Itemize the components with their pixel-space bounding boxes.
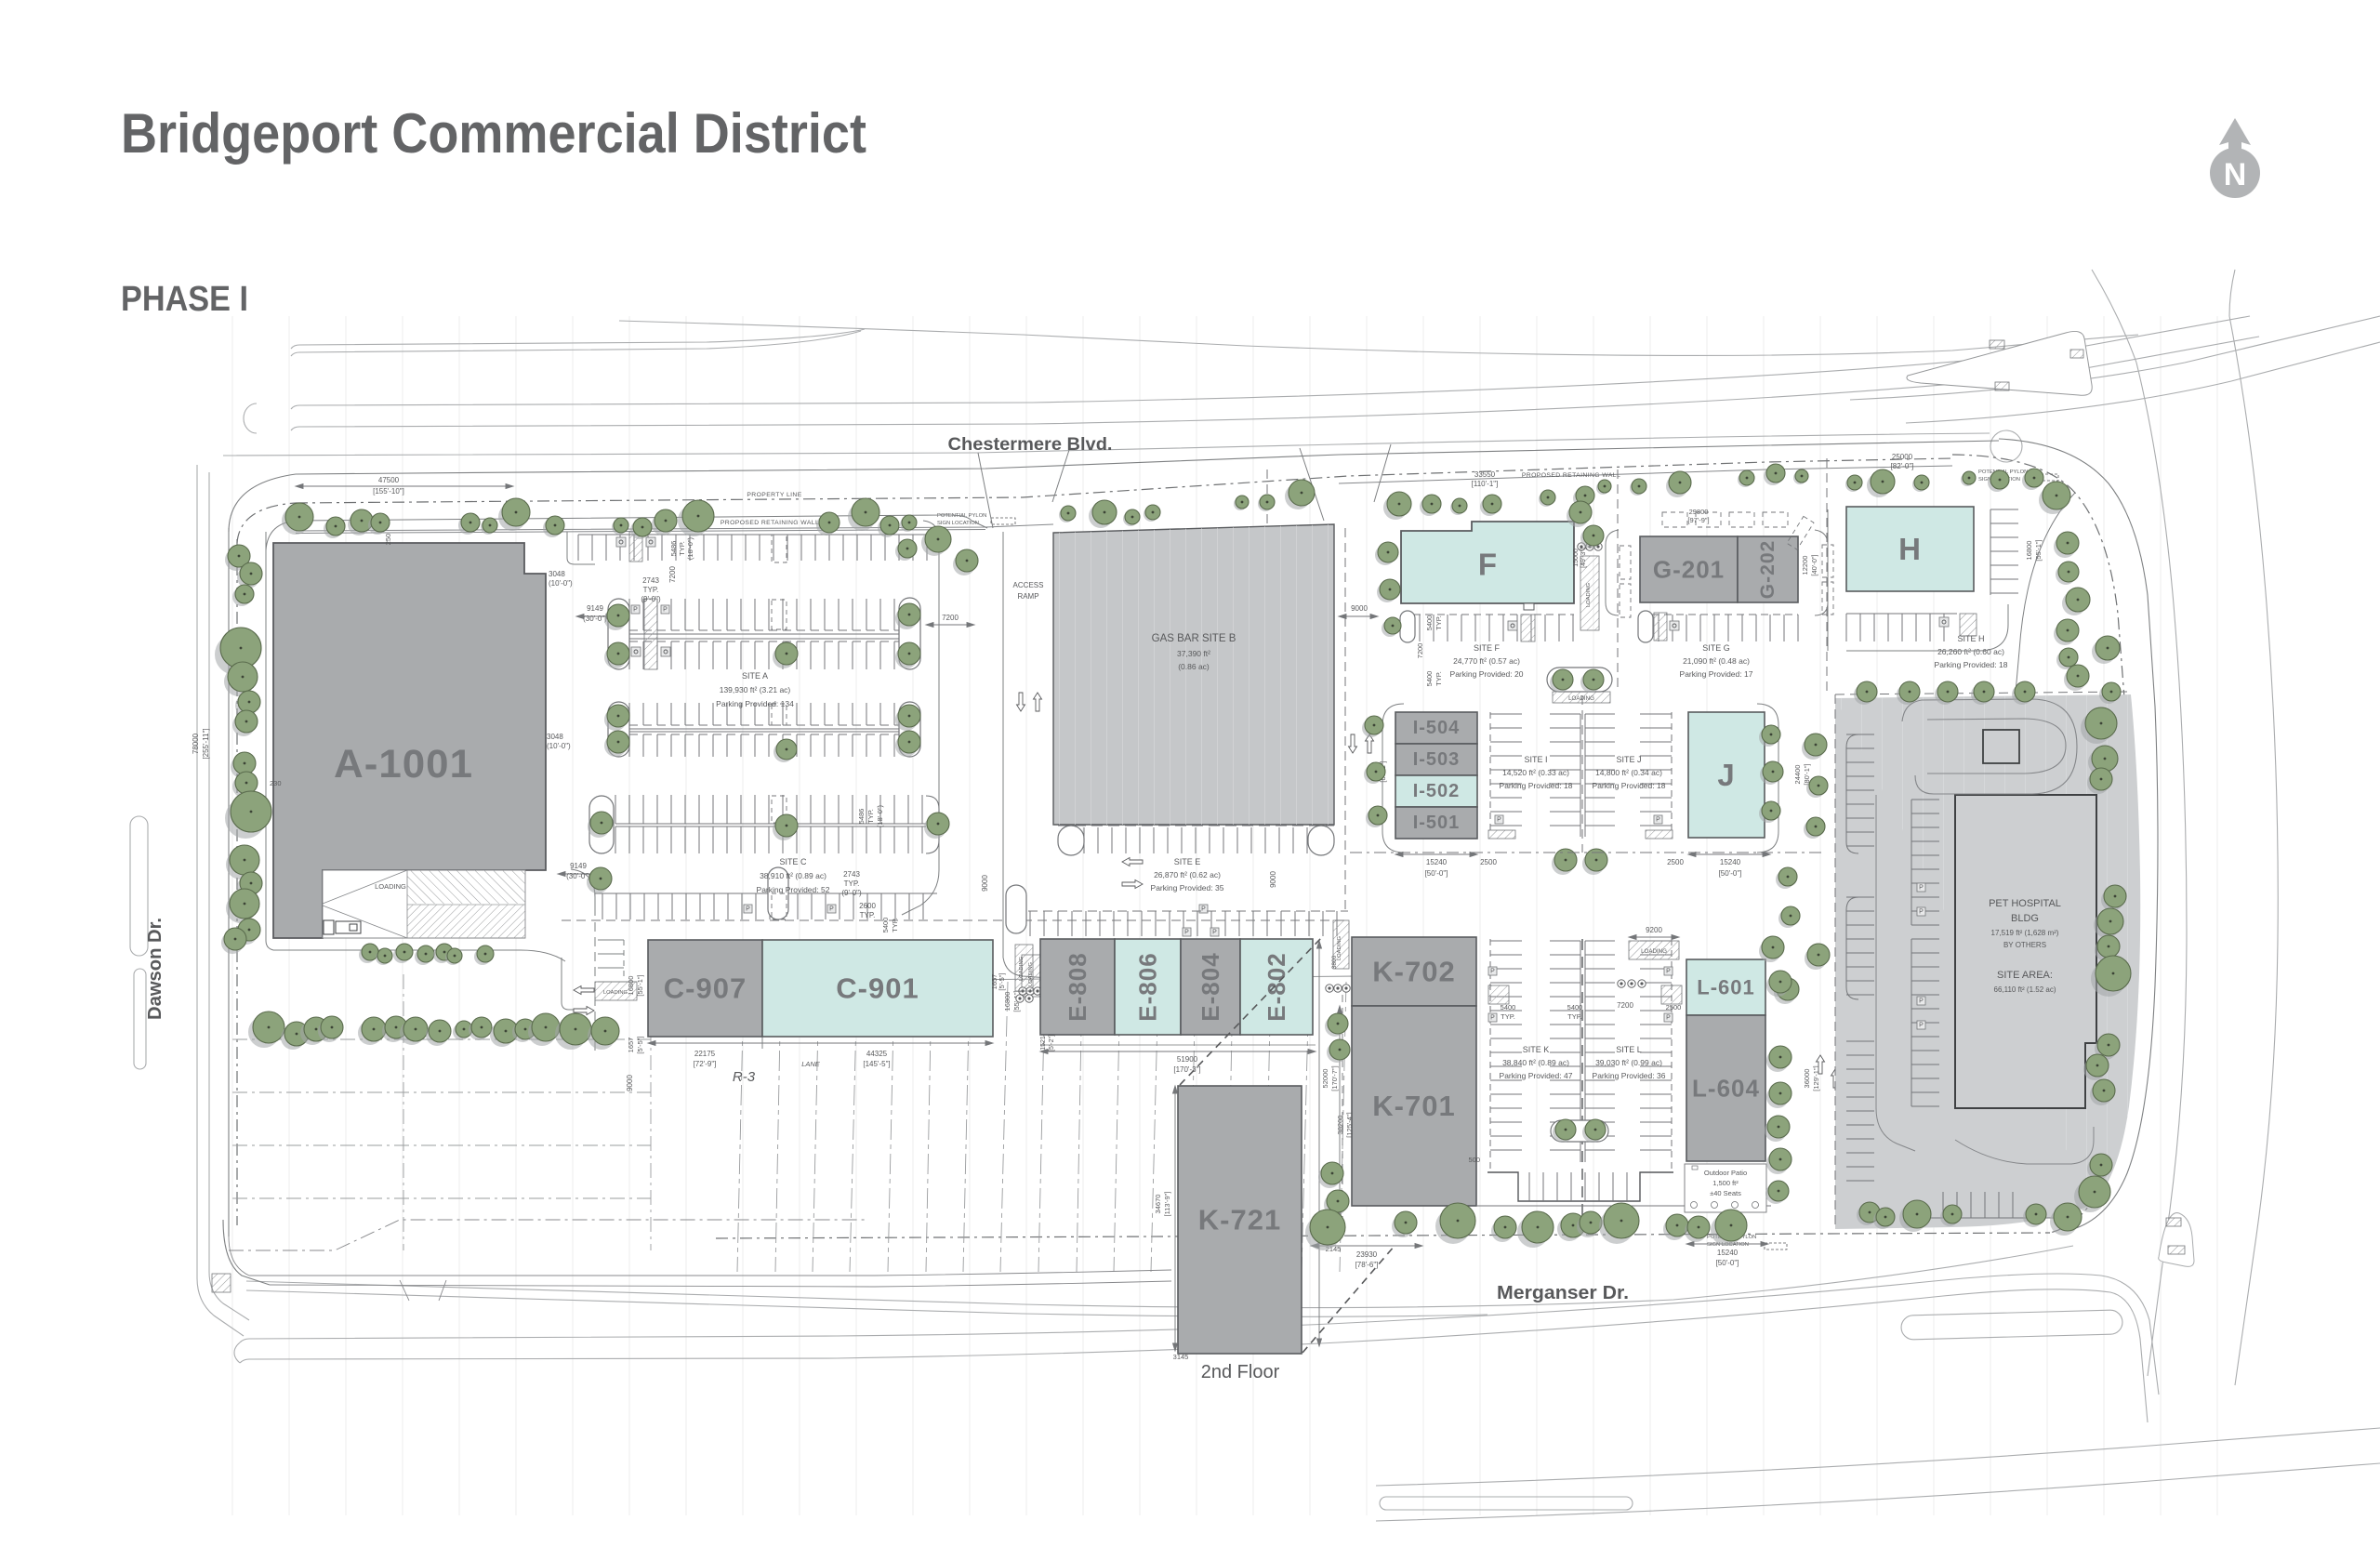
svg-text:23930: 23930 [1356, 1250, 1378, 1259]
svg-text:15240: 15240 [1717, 1249, 1739, 1257]
svg-text:22175: 22175 [694, 1050, 716, 1058]
svg-text:[50'-0"]: [50'-0"] [1425, 869, 1448, 878]
svg-text:26,870 ft² (0.62 ac): 26,870 ft² (0.62 ac) [1154, 870, 1221, 879]
svg-text:P: P [1919, 885, 1924, 892]
svg-text:34670: 34670 [1154, 1195, 1162, 1214]
svg-text:9000: 9000 [1351, 604, 1368, 613]
svg-text:3048: 3048 [547, 733, 563, 741]
svg-text:P: P [1919, 1023, 1924, 1029]
svg-text:3145: 3145 [1173, 1353, 1189, 1361]
svg-text:P: P [663, 607, 668, 614]
svg-text:15000: 15000 [1573, 549, 1580, 567]
svg-text:G-201: G-201 [1653, 556, 1725, 584]
svg-text:(0.86 ac): (0.86 ac) [1178, 662, 1210, 671]
svg-text:2743: 2743 [843, 870, 860, 879]
svg-text:2743: 2743 [642, 576, 659, 585]
svg-text:[55'-1"]: [55'-1"] [2034, 539, 2043, 561]
svg-text:TYP.: TYP. [1435, 671, 1443, 686]
svg-text:9149: 9149 [570, 862, 587, 870]
svg-text:(9'-0"): (9'-0") [641, 595, 661, 603]
svg-text:66,110 ft² (1.52 ac): 66,110 ft² (1.52 ac) [1994, 985, 2056, 994]
svg-text:P: P [1497, 817, 1501, 824]
svg-text:[55'-1"]: [55'-1"] [636, 974, 644, 996]
svg-text:33550: 33550 [1474, 470, 1496, 479]
svg-text:BLDG: BLDG [2011, 913, 2039, 924]
svg-text:(18'-0"): (18'-0") [876, 804, 884, 827]
svg-text:PROPERTY LINE: PROPERTY LINE [747, 492, 801, 498]
svg-text:38,910 ft² (0.89 ac): 38,910 ft² (0.89 ac) [760, 871, 826, 880]
svg-text:78000: 78000 [192, 733, 200, 754]
svg-text:TYP.: TYP. [891, 918, 899, 932]
svg-text:7200: 7200 [668, 566, 677, 583]
svg-text:[78'-6"]: [78'-6"] [1355, 1261, 1379, 1269]
svg-text:SITE E: SITE E [1174, 857, 1201, 866]
svg-text:Parking Provided: 18: Parking Provided: 18 [1500, 781, 1573, 790]
svg-text:5486: 5486 [669, 541, 678, 557]
svg-text:36000: 36000 [1803, 1069, 1811, 1089]
svg-text:P: P [1919, 998, 1924, 1005]
svg-text:I-503: I-503 [1413, 749, 1461, 770]
svg-text:PET HOSPITAL: PET HOSPITAL [1989, 898, 2061, 909]
svg-text:SITE I: SITE I [1524, 755, 1547, 764]
svg-text:TYP.: TYP. [860, 911, 876, 919]
svg-text:BY OTHERS: BY OTHERS [2003, 941, 2046, 949]
svg-text:29800: 29800 [1689, 508, 1709, 516]
svg-text:2500: 2500 [1667, 858, 1684, 866]
svg-text:J: J [1717, 758, 1735, 792]
svg-text:LOADING: LOADING [603, 990, 628, 996]
svg-text:A-1001: A-1001 [334, 742, 473, 787]
svg-text:SITE C: SITE C [779, 857, 807, 866]
svg-text:38,840 ft² (0.89 ac): 38,840 ft² (0.89 ac) [1502, 1058, 1569, 1067]
svg-text:12200: 12200 [1801, 556, 1809, 575]
svg-text:14,800 ft² (0.34 ac): 14,800 ft² (0.34 ac) [1595, 768, 1662, 777]
svg-text:5400: 5400 [1567, 1003, 1583, 1011]
svg-text:15240: 15240 [1720, 858, 1741, 866]
svg-text:17,519 ft² (1,628 m²): 17,519 ft² (1,628 m²) [1991, 929, 2059, 937]
svg-text:7200: 7200 [1416, 643, 1424, 659]
svg-text:7200: 7200 [942, 614, 959, 622]
svg-text:Parking Provided: 35: Parking Provided: 35 [1151, 883, 1224, 892]
svg-text:51900: 51900 [1177, 1055, 1198, 1064]
svg-text:Parking Provided: 18: Parking Provided: 18 [1593, 781, 1666, 790]
svg-text:Parking Provided: 17: Parking Provided: 17 [1680, 669, 1753, 679]
svg-text:SITE AREA:: SITE AREA: [1997, 970, 2053, 981]
svg-text:Parking Provided: 20: Parking Provided: 20 [1450, 669, 1524, 679]
svg-text:(30'-0"): (30'-0") [566, 872, 590, 880]
svg-text:39,030 ft² (0.99 ac): 39,030 ft² (0.99 ac) [1595, 1058, 1662, 1067]
svg-text:1657: 1657 [627, 1038, 635, 1053]
svg-text:[49'-3"]: [49'-3"] [1580, 548, 1587, 568]
svg-text:500: 500 [1468, 1156, 1480, 1164]
svg-text:TYP.: TYP. [1567, 1012, 1582, 1021]
svg-text:44325: 44325 [866, 1050, 888, 1058]
svg-text:[113'-9"]: [113'-9"] [1163, 1192, 1171, 1217]
svg-text:9149: 9149 [587, 604, 603, 613]
svg-text:25000: 25000 [1892, 453, 1913, 461]
svg-text:LANE: LANE [801, 1060, 821, 1068]
svg-text:9000: 9000 [1269, 871, 1277, 888]
svg-text:Chestermere Blvd.: Chestermere Blvd. [948, 435, 1113, 455]
svg-text:21,090 ft² (0.48 ac): 21,090 ft² (0.48 ac) [1683, 656, 1750, 666]
svg-text:P: P [1919, 909, 1924, 916]
svg-text:9000: 9000 [626, 1075, 634, 1091]
svg-text:SITE J: SITE J [1616, 755, 1641, 764]
svg-text:9200: 9200 [1646, 926, 1662, 934]
svg-text:[255'-11"]: [255'-11"] [202, 728, 210, 759]
svg-text:E-802: E-802 [1263, 952, 1290, 1021]
svg-text:[50'-0"]: [50'-0"] [1716, 1259, 1739, 1267]
svg-text:2500: 2500 [1666, 1003, 1682, 1011]
svg-text:SITE K: SITE K [1523, 1045, 1550, 1054]
svg-text:C-907: C-907 [664, 972, 747, 1005]
svg-text:Merganser Dr.: Merganser Dr. [1497, 1283, 1629, 1303]
svg-text:24400: 24400 [1793, 765, 1802, 785]
svg-text:C-901: C-901 [836, 972, 919, 1005]
svg-text:SITE F: SITE F [1474, 643, 1501, 653]
svg-text:[5'-2"]: [5'-2"] [1049, 1035, 1055, 1051]
svg-text:Parking Provided: 134: Parking Provided: 134 [716, 699, 794, 708]
svg-text:(9'-0"): (9'-0") [841, 889, 862, 897]
svg-text:PHASE I: PHASE I [121, 280, 248, 319]
svg-text:SITE L: SITE L [1616, 1045, 1642, 1054]
svg-text:2nd Floor: 2nd Floor [1201, 1362, 1280, 1382]
svg-text:L-601: L-601 [1697, 976, 1754, 999]
svg-text:(18'-0"): (18'-0") [686, 536, 694, 560]
svg-text:15240: 15240 [1426, 858, 1448, 866]
svg-text:[40'-0"]: [40'-0"] [1810, 554, 1818, 575]
svg-text:RAMP: RAMP [1017, 592, 1038, 601]
svg-text:[170'-3"]: [170'-3"] [1173, 1065, 1200, 1074]
svg-text:Dawson Dr.: Dawson Dr. [145, 918, 165, 1020]
svg-text:H: H [1898, 532, 1922, 566]
svg-text:Parking Provided: 47: Parking Provided: 47 [1500, 1071, 1573, 1080]
svg-text:3048: 3048 [549, 570, 565, 578]
svg-text:TYP.: TYP. [1435, 615, 1443, 630]
svg-text:5400: 5400 [1501, 1003, 1516, 1011]
svg-text:[72'-9"]: [72'-9"] [694, 1060, 717, 1068]
svg-text:K-721: K-721 [1198, 1204, 1281, 1236]
svg-text:[82'-0"]: [82'-0"] [1891, 462, 1914, 470]
svg-text:2600: 2600 [859, 902, 876, 910]
svg-text:5486: 5486 [857, 809, 866, 825]
svg-text:P: P [1490, 1015, 1495, 1022]
svg-text:K-701: K-701 [1372, 1090, 1455, 1122]
svg-text:[170'-7"]: [170'-7"] [1330, 1065, 1339, 1091]
svg-text:TYP.: TYP. [1501, 1012, 1515, 1021]
svg-text:P: P [1666, 1015, 1671, 1022]
svg-text:LOADING: LOADING [1586, 582, 1592, 607]
svg-text:24,770 ft² (0.57 ac): 24,770 ft² (0.57 ac) [1453, 656, 1520, 666]
svg-text:I-504: I-504 [1413, 718, 1461, 738]
svg-text:P: P [633, 607, 638, 614]
svg-text:[155'-10"]: [155'-10"] [373, 487, 404, 496]
svg-text:5400: 5400 [1425, 671, 1434, 687]
svg-text:14,520 ft² (0.33 ac): 14,520 ft² (0.33 ac) [1502, 768, 1569, 777]
svg-text:16800: 16800 [1003, 992, 1011, 1011]
svg-text:[5'-5"]: [5'-5"] [636, 1036, 644, 1053]
svg-text:[110'-1"]: [110'-1"] [1472, 480, 1499, 488]
svg-text:38200: 38200 [1336, 1116, 1344, 1135]
svg-text:Parking Provided: 18: Parking Provided: 18 [1935, 660, 2008, 669]
svg-text:LOADING: LOADING [1641, 948, 1667, 955]
svg-text:37,390 ft²: 37,390 ft² [1177, 649, 1210, 658]
svg-text:G-202: G-202 [1757, 540, 1778, 599]
svg-text:L-604: L-604 [1692, 1075, 1760, 1103]
svg-text:TYP.: TYP. [844, 879, 860, 888]
svg-text:5400: 5400 [1425, 615, 1434, 631]
svg-text:SITE H: SITE H [1957, 634, 1984, 643]
svg-text:P: P [1201, 906, 1206, 913]
svg-text:7200: 7200 [1617, 1001, 1633, 1010]
svg-text:(10'-0"): (10'-0") [547, 742, 571, 750]
svg-text:K-702: K-702 [1372, 956, 1455, 988]
svg-text:(30'-0"): (30'-0") [583, 615, 607, 623]
svg-text:LOADING: LOADING [1568, 695, 1594, 702]
svg-text:[5'-5"]: [5'-5"] [998, 972, 1006, 990]
svg-text:Parking Provided: 36: Parking Provided: 36 [1593, 1071, 1666, 1080]
svg-text:R-3: R-3 [733, 1069, 756, 1085]
svg-text:1,500 ft²: 1,500 ft² [1712, 1179, 1739, 1187]
svg-text:230: 230 [270, 779, 282, 787]
svg-text:[145'-5"]: [145'-5"] [863, 1060, 890, 1068]
svg-text:SITE A: SITE A [742, 671, 768, 681]
svg-text:Bridgeport Commercial District: Bridgeport Commercial District [121, 102, 866, 165]
svg-text:P: P [829, 906, 834, 913]
svg-text:5400: 5400 [881, 918, 890, 933]
svg-text:I-502: I-502 [1413, 781, 1461, 801]
svg-text:9000: 9000 [981, 875, 989, 892]
svg-text:P: P [1212, 930, 1217, 936]
svg-text:P: P [1184, 930, 1189, 936]
svg-text:ACCESS: ACCESS [1013, 581, 1044, 589]
svg-text:(10'-0"): (10'-0") [549, 579, 573, 588]
svg-text:52000: 52000 [1321, 1069, 1329, 1089]
svg-text:TYP.: TYP. [866, 809, 875, 824]
svg-text:[97'-9"]: [97'-9"] [1687, 516, 1709, 524]
svg-text:P: P [1656, 817, 1660, 824]
svg-text:E-808: E-808 [1064, 952, 1091, 1021]
svg-text:16800: 16800 [2025, 541, 2033, 561]
svg-text:LOADING: LOADING [1019, 956, 1025, 981]
svg-text:LOADING: LOADING [375, 882, 406, 891]
svg-text:2500: 2500 [1480, 858, 1497, 866]
svg-text:3800: 3800 [1331, 955, 1338, 969]
svg-text:P: P [746, 906, 750, 913]
svg-text:PROPOSED RETAINING WALL: PROPOSED RETAINING WALL [721, 520, 819, 526]
svg-text:±40 Seats: ±40 Seats [1710, 1189, 1741, 1197]
svg-text:I-501: I-501 [1413, 813, 1461, 833]
svg-text:N: N [2224, 157, 2247, 192]
svg-text:16800: 16800 [627, 976, 635, 996]
svg-text:250: 250 [384, 534, 392, 546]
svg-text:SITE G: SITE G [1702, 643, 1730, 653]
svg-text:GAS BAR SITE B: GAS BAR SITE B [1152, 633, 1236, 644]
svg-text:139,930 ft² (3.21 ac): 139,930 ft² (3.21 ac) [720, 685, 791, 694]
svg-text:F: F [1478, 548, 1497, 582]
svg-text:Parking Provided: 52: Parking Provided: 52 [757, 885, 830, 894]
svg-text:TYP.: TYP. [678, 541, 686, 556]
svg-text:E-806: E-806 [1134, 952, 1162, 1021]
svg-text:E-804: E-804 [1197, 952, 1224, 1021]
svg-text:[50'-0"]: [50'-0"] [1719, 869, 1742, 878]
svg-text:PROPOSED RETAINING WALL: PROPOSED RETAINING WALL [1522, 472, 1620, 479]
svg-text:47500: 47500 [378, 476, 400, 484]
svg-text:P: P [1490, 969, 1495, 975]
svg-text:Outdoor Patio: Outdoor Patio [1704, 1169, 1747, 1177]
svg-text:P: P [1666, 969, 1671, 975]
svg-text:1521: 1521 [1040, 1036, 1047, 1051]
svg-text:TYP.: TYP. [643, 586, 659, 594]
